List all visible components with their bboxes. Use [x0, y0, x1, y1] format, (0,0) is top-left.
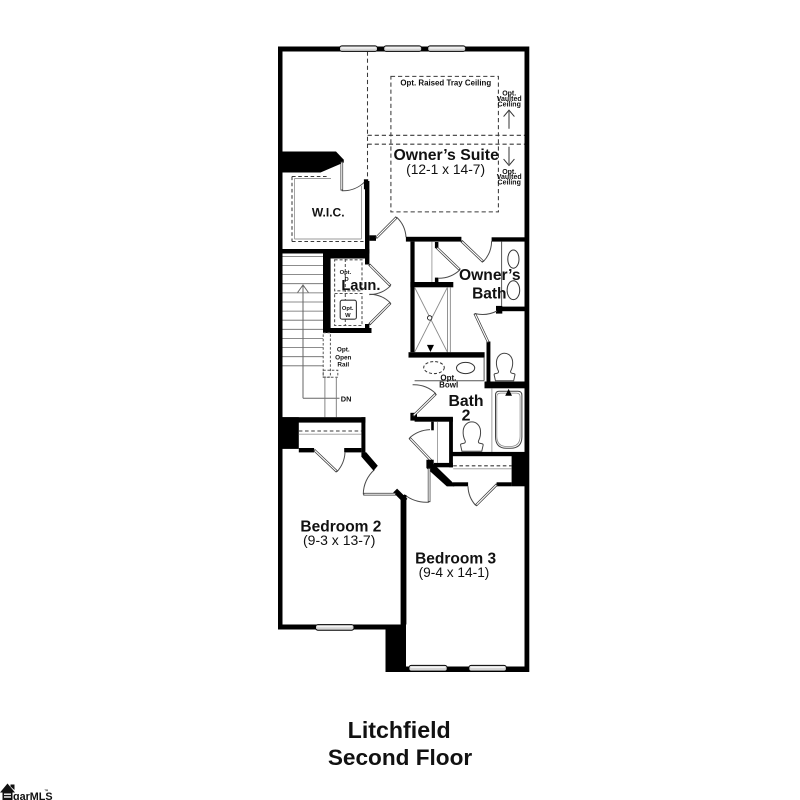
svg-text:DN: DN [341, 394, 352, 403]
svg-text:Rail: Rail [337, 362, 349, 369]
svg-text:W: W [345, 313, 351, 319]
svg-text:Ceiling: Ceiling [498, 101, 521, 108]
svg-text:Opt. Raised Tray Ceiling: Opt. Raised Tray Ceiling [400, 78, 491, 87]
svg-text:Bath: Bath [472, 285, 506, 302]
svg-text:Opt.: Opt. [340, 270, 352, 276]
svg-text:Litchfield: Litchfield [348, 717, 451, 743]
svg-text:Owner’s: Owner’s [459, 267, 521, 284]
svg-text:(12-1 x 14-7): (12-1 x 14-7) [406, 162, 485, 177]
svg-text:Second Floor: Second Floor [328, 745, 473, 770]
svg-text:Opt.: Opt. [337, 346, 350, 353]
svg-text:Opt.: Opt. [342, 306, 354, 312]
svg-text:™: ™ [44, 789, 49, 794]
svg-text:Ceiling: Ceiling [498, 180, 521, 187]
svg-text:(9-4 x 14-1): (9-4 x 14-1) [419, 565, 490, 580]
svg-text:Bowl: Bowl [439, 380, 458, 389]
svg-text:W.I.C.: W.I.C. [312, 205, 345, 219]
svg-text:Open: Open [335, 354, 351, 361]
svg-text:(9-3 x 13-7): (9-3 x 13-7) [303, 532, 375, 548]
svg-text:Laun.: Laun. [341, 278, 380, 294]
